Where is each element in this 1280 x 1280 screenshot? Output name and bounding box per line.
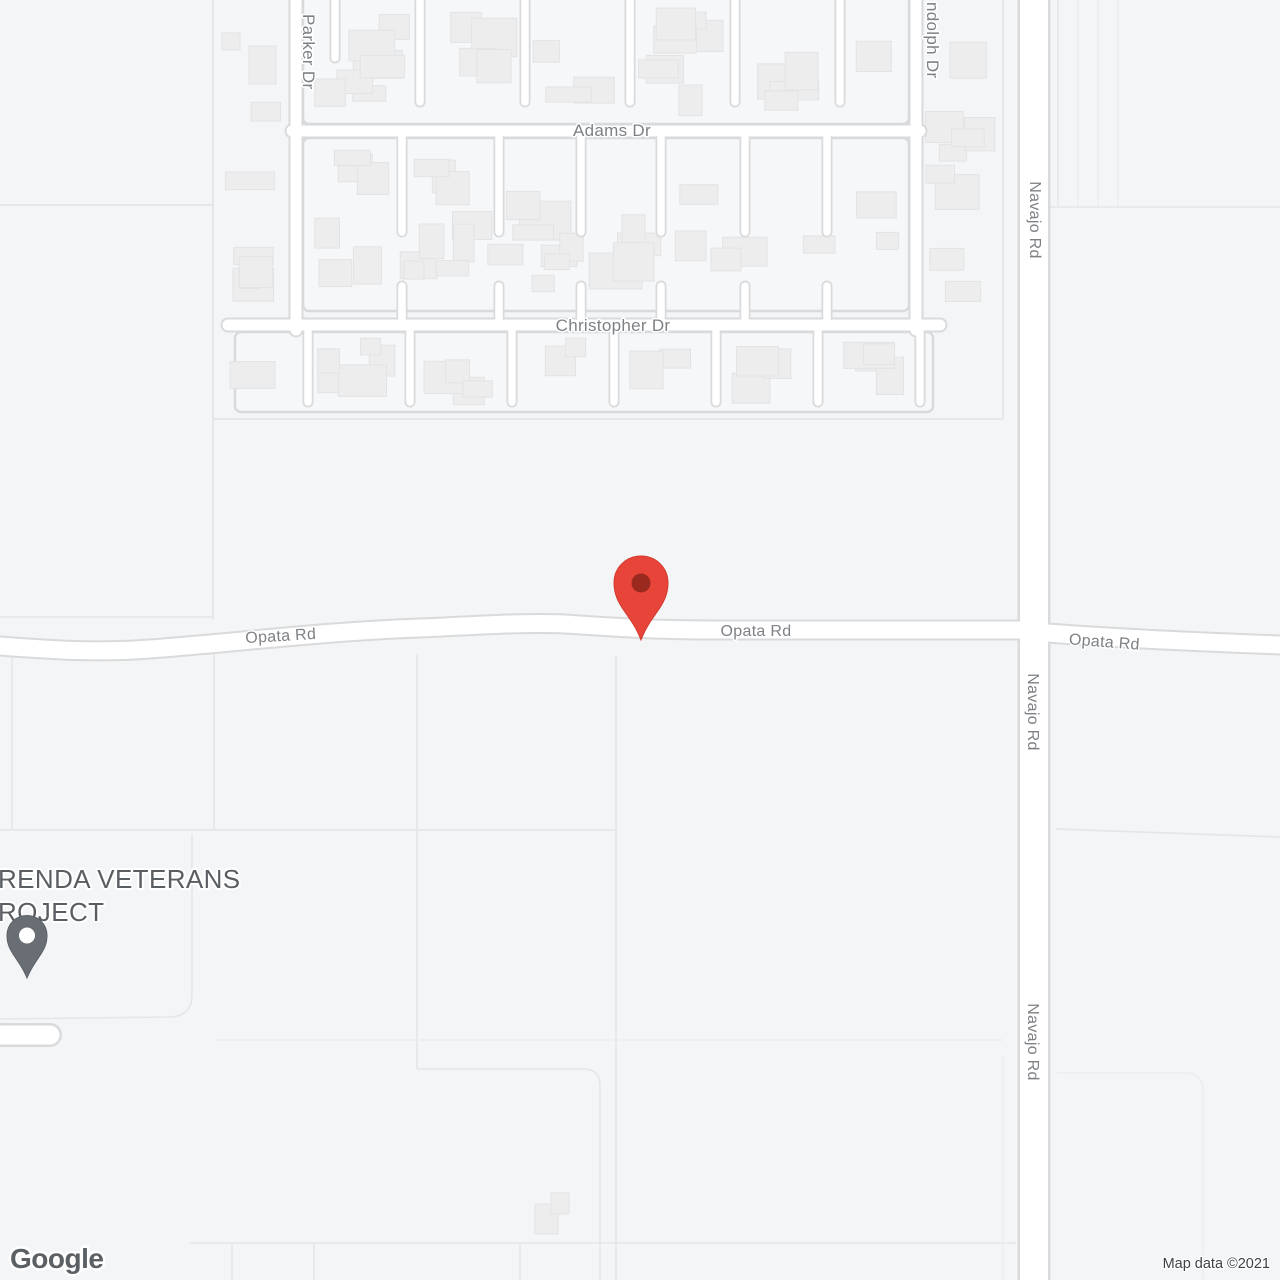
street-label-navajo-middle: Navajo Rd (1024, 673, 1041, 750)
poi-label-line1: RENDA VETERANS (0, 864, 241, 894)
map-data-copyright: Map data ©2021 (1163, 1256, 1270, 1272)
street-label-navajo-top: Navajo Rd (1026, 181, 1043, 258)
street-label-randolph: ndolph Dr (923, 2, 942, 78)
map-canvas[interactable]: Parker Dr ndolph Dr Adams Dr Christopher… (0, 0, 1280, 1280)
street-label-navajo-bottom: Navajo Rd (1024, 1003, 1041, 1080)
google-logo[interactable]: Google (10, 1243, 103, 1274)
street-label-christopher: Christopher Dr (556, 316, 671, 335)
map-viewport[interactable]: Parker Dr ndolph Dr Adams Dr Christopher… (0, 0, 1280, 1280)
street-label-parker: Parker Dr (299, 14, 318, 89)
street-label-adams: Adams Dr (573, 121, 651, 140)
street-label-opata-middle: Opata Rd (721, 623, 792, 640)
